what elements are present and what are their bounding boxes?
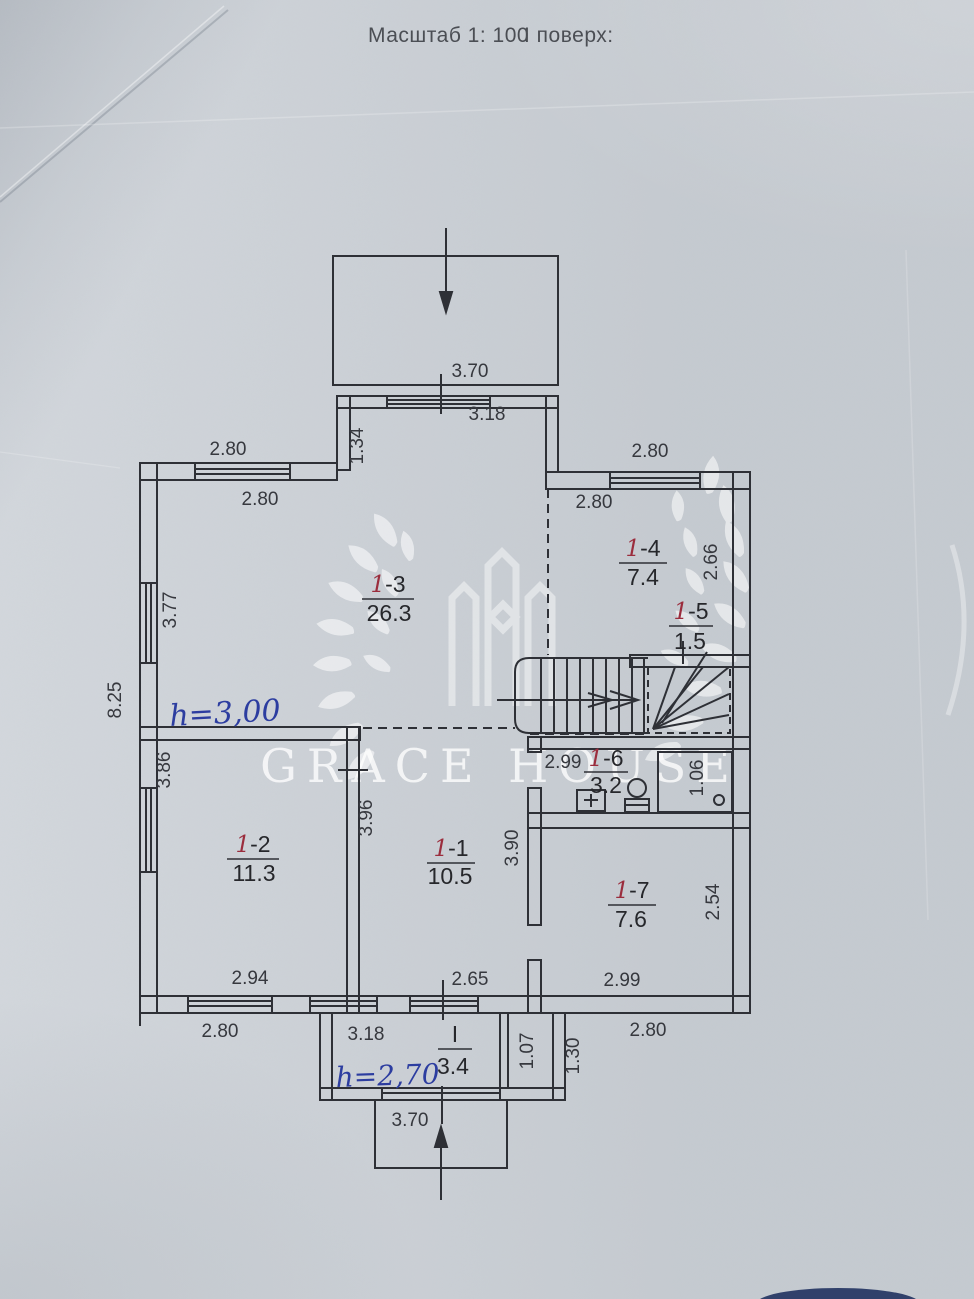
dim-porch-top: 3.70: [452, 361, 489, 382]
room-area: 7.6: [615, 906, 647, 932]
dim-shower-width: 1.06: [687, 760, 708, 797]
room-number: 1-6: [588, 745, 623, 772]
dim-left-total: 8.25: [105, 682, 126, 719]
room-label-1-6: 1-6 3.2: [588, 745, 623, 798]
room-area: 26.3: [367, 600, 412, 626]
dim-room12-right: 3.96: [356, 800, 377, 837]
dim-room11-bottom: 2.65: [452, 969, 489, 990]
room-number: 1-2: [235, 831, 270, 858]
dim-room17-bottom: 2.99: [604, 970, 641, 991]
dim-vestibule-offset: 1.30: [563, 1038, 584, 1075]
dim-room14-height: 2.66: [701, 544, 722, 581]
dim-room17-height: 2.54: [703, 883, 724, 920]
dim-vestibule-width: 3.18: [348, 1024, 385, 1045]
scanned-floorplan-page: Масштаб 1: 100 І поверх:: [0, 0, 974, 1299]
room-number: 1-3: [370, 571, 405, 598]
room-number: I: [452, 1021, 458, 1047]
dim-vestibule-right: 1.07: [517, 1033, 538, 1070]
room-area: 11.3: [232, 860, 275, 886]
room-area: 7.4: [627, 564, 659, 590]
dim-room13-left: 3.77: [160, 592, 181, 629]
dim-porch-bottom: 3.70: [392, 1110, 429, 1131]
room-number: 1-4: [625, 535, 660, 562]
dim-entry-door: 3.18: [469, 404, 506, 425]
floorplan-drawing: GRACE HOUSE: [0, 0, 974, 1299]
room-area: 10.5: [428, 863, 473, 889]
handwritten-height-vestibule: h=2,70: [335, 1057, 440, 1094]
room-area: 3.4: [437, 1053, 469, 1079]
dim-bottom-right-outer: 2.80: [630, 1020, 667, 1041]
dim-room16-width: 2.99: [545, 752, 582, 773]
dim-bottom-left-outer: 2.80: [202, 1021, 239, 1042]
room-number: 1-5: [673, 598, 708, 625]
dim-room14-width: 2.80: [576, 492, 613, 513]
watermark-text: GRACE HOUSE: [260, 739, 740, 793]
handwritten-height-main: h=3,00: [169, 693, 282, 734]
room-area: 3.2: [590, 772, 622, 798]
dim-top-left-inner: 2.80: [242, 489, 279, 510]
dim-room12-bottom: 2.94: [232, 968, 269, 989]
room-area: 1.5: [674, 628, 706, 654]
dim-porch-side: 1.34: [347, 427, 368, 464]
room-number: 1-1: [433, 835, 468, 862]
room-number: 1-7: [614, 877, 649, 904]
dim-top-right-outer: 2.80: [632, 441, 669, 462]
dim-top-left-outer: 2.80: [210, 439, 247, 460]
dim-room12-left: 3.86: [154, 752, 175, 789]
dim-room11-right: 3.90: [502, 830, 523, 867]
